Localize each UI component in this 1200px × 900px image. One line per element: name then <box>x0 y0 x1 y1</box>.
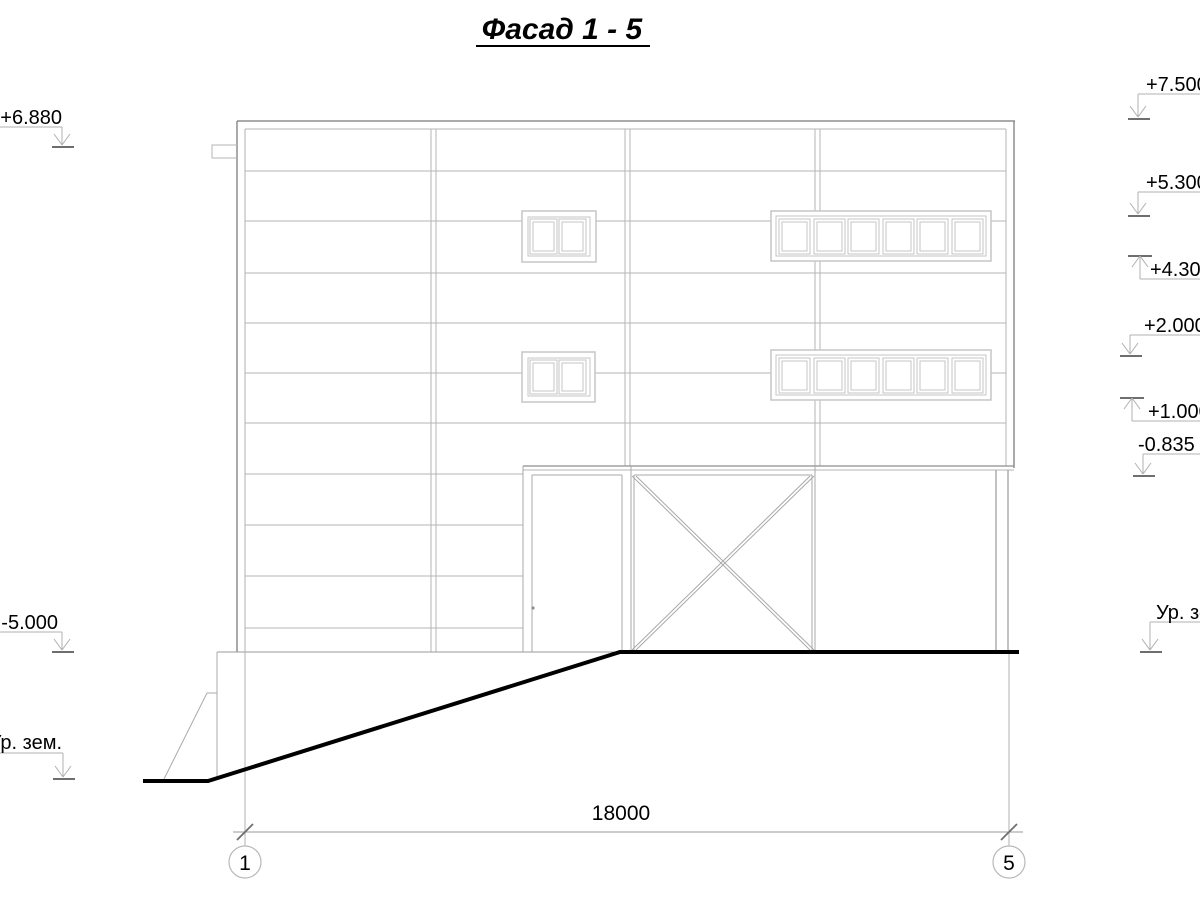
elevation-mark-right-5300: +5.300 <box>1128 172 1200 216</box>
page-title: Фасад 1 - 5 <box>482 13 644 46</box>
elevation-mark-right-1000: +1.000 <box>1120 398 1200 423</box>
elevation-mark-right-ground: Ур. зем. <box>1140 602 1200 652</box>
arrow-wing <box>54 134 62 145</box>
ground-line <box>143 652 1019 781</box>
facade-bottom-band <box>217 466 1014 652</box>
elevation-label: +6.880 <box>0 107 62 129</box>
elevation-label: +1.000 <box>1148 401 1200 423</box>
arrow-wing <box>62 134 70 145</box>
dimension: 18000 <box>233 802 1023 840</box>
grid-axis-number: 1 <box>239 852 251 875</box>
arrow-wing <box>1130 106 1138 117</box>
elevation-mark-left-5000: -5.000 <box>0 612 74 652</box>
grid-axis-number: 5 <box>1003 852 1015 875</box>
grid-axis-5: 5 <box>993 846 1025 878</box>
arrow-wing <box>62 639 70 650</box>
drawing-title: Фасад 1 - 5 <box>476 13 650 46</box>
grid-axis-1: 1 <box>229 846 261 878</box>
arrow-wing <box>1135 463 1143 474</box>
arrow-wing <box>63 766 71 777</box>
arrow-wing <box>1130 343 1138 354</box>
building-inner-outline <box>212 129 1006 466</box>
facade-drawing-sheet: Фасад 1 - 5 <box>0 0 1200 900</box>
arrow-wing <box>1122 343 1130 354</box>
arrow-wing <box>1130 203 1138 214</box>
door-handle <box>531 606 534 609</box>
panel-joints <box>431 129 820 652</box>
elevation-drawing: Фасад 1 - 5 <box>0 0 1200 900</box>
foundation-slope-edge <box>164 693 207 779</box>
elevation-label: +2.000 <box>1144 315 1200 337</box>
elevation-mark-right-2000: +2.000 <box>1120 315 1200 356</box>
elevation-label: Ур. зем. <box>1156 602 1200 624</box>
window-small-row2 <box>522 352 595 402</box>
dimension-value: 18000 <box>592 802 650 825</box>
arrow-wing <box>55 766 63 777</box>
arrow-wing <box>1143 463 1151 474</box>
arrow-wing <box>1138 203 1146 214</box>
elevation-label: -5.000 <box>1 612 58 634</box>
elevation-label: +4.300 <box>1150 259 1200 281</box>
elevation-mark-right-4300: +4.300 <box>1128 256 1200 281</box>
foundation <box>164 652 217 779</box>
arrow-wing <box>1124 398 1132 409</box>
arrow-wing <box>1150 639 1158 650</box>
arrow-wing <box>1142 639 1150 650</box>
arrow-wing <box>54 639 62 650</box>
elevation-mark-right-7500: +7.500 <box>1128 74 1200 119</box>
elevation-label: Ур. зем. <box>0 732 62 754</box>
arrow-wing <box>1138 106 1146 117</box>
arrow-wing <box>1140 256 1148 267</box>
brace-panel <box>632 466 815 652</box>
door <box>523 466 631 652</box>
window-small-row1 <box>522 211 596 262</box>
elevation-mark-right-0835: -0.835 <box>1133 434 1200 476</box>
elevation-mark-left-ground: Ур. зем. <box>0 732 75 779</box>
arrow-wing <box>1132 398 1140 409</box>
right-column <box>996 470 1008 652</box>
elevation-label: +5.300 <box>1146 172 1200 194</box>
window-strip-row2 <box>771 350 991 400</box>
elevation-mark-left-6880: +6.880 <box>0 107 74 147</box>
wall-ledge <box>212 145 237 158</box>
elevation-label: +7.500 <box>1146 74 1200 96</box>
elevation-label: -0.835 <box>1138 434 1195 456</box>
window-strip-row1 <box>771 211 991 261</box>
arrow-wing <box>1132 256 1140 267</box>
